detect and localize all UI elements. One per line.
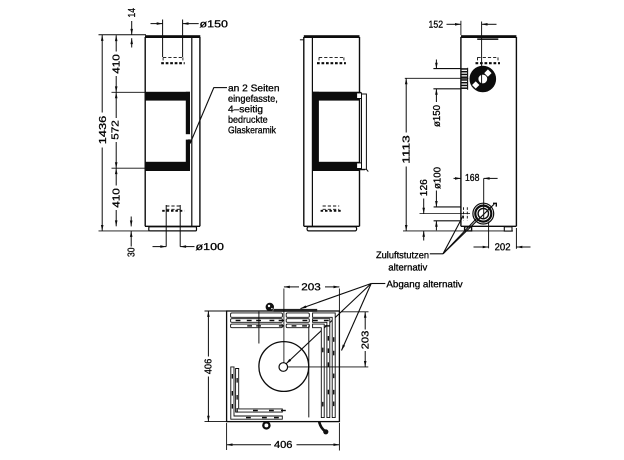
svg-text:203: 203: [361, 330, 372, 349]
svg-text:bedruckte: bedruckte: [228, 115, 268, 126]
svg-text:572: 572: [111, 120, 122, 140]
svg-text:an 2 Seiten: an 2 Seiten: [228, 83, 280, 94]
svg-text:203: 203: [301, 282, 321, 293]
svg-text:ø100: ø100: [195, 242, 224, 253]
svg-text:202: 202: [495, 242, 511, 253]
svg-text:30: 30: [126, 247, 137, 257]
svg-text:4–seitig: 4–seitig: [228, 104, 263, 115]
svg-text:126: 126: [419, 179, 430, 196]
svg-text:ø100: ø100: [432, 167, 443, 189]
svg-text:406: 406: [274, 440, 293, 451]
svg-text:ø150: ø150: [199, 19, 228, 30]
svg-text:410: 410: [111, 54, 122, 74]
svg-text:Glaskeramik: Glaskeramik: [228, 125, 276, 136]
svg-text:eingefasste,: eingefasste,: [228, 94, 278, 105]
svg-text:410: 410: [111, 188, 122, 208]
svg-text:alternativ: alternativ: [388, 262, 427, 273]
svg-text:Abgang alternativ: Abgang alternativ: [386, 279, 463, 290]
svg-text:Zuluftstutzen: Zuluftstutzen: [376, 250, 429, 261]
svg-text:152: 152: [429, 20, 444, 31]
svg-text:406: 406: [204, 358, 215, 374]
svg-text:1436: 1436: [98, 115, 109, 144]
svg-text:168: 168: [465, 173, 480, 184]
svg-text:14: 14: [127, 8, 138, 18]
svg-text:1113: 1113: [402, 135, 413, 164]
svg-text:ø150: ø150: [432, 105, 443, 127]
